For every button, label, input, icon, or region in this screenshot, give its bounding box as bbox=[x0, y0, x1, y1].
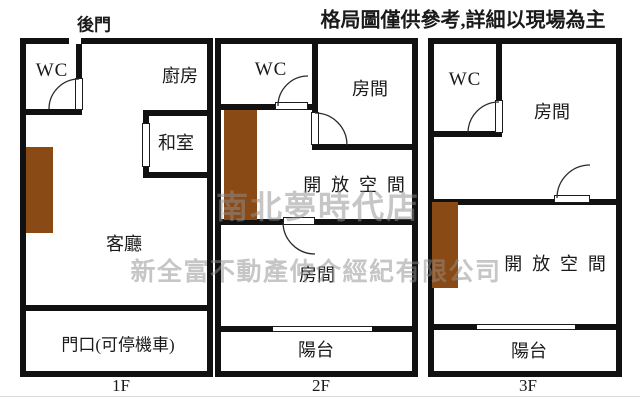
door-arc-1f-wc bbox=[49, 79, 79, 109]
door-arcs-layer bbox=[0, 0, 640, 411]
door-arc-3f-wc bbox=[468, 102, 499, 133]
door-arc-2f-room-top bbox=[315, 113, 347, 145]
door-arc-3f-room bbox=[557, 165, 590, 198]
door-arc-2f-room-bottom bbox=[283, 222, 315, 254]
door-arc-2f-wc bbox=[278, 76, 308, 106]
floorplan-canvas: 格局圖僅供參考,詳細以現場為主 後門 WC 廚房 和室 客廳 門口(可停機車) … bbox=[0, 0, 640, 411]
